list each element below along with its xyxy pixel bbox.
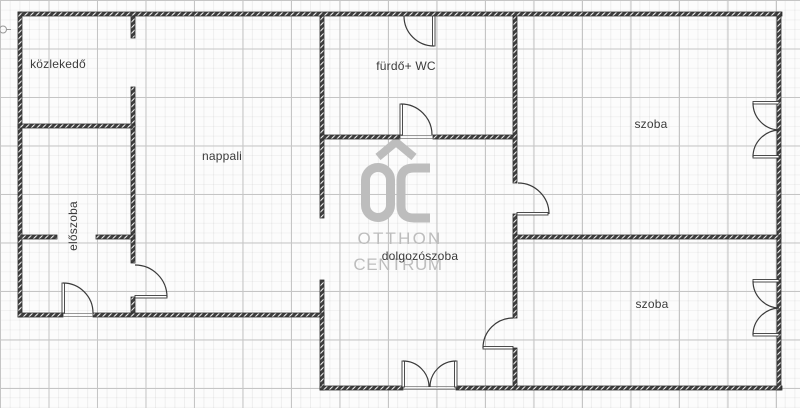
watermark-logo-c — [401, 168, 430, 218]
windows — [753, 102, 779, 337]
wall-eloszoba-divider-b — [96, 235, 135, 239]
watermark-roof-icon — [378, 142, 414, 157]
wall-middle-vertical-a — [513, 16, 517, 183]
window-swing-arc — [753, 308, 779, 335]
wall-bottom-left-b — [93, 313, 324, 317]
door-entrance — [62, 283, 93, 313]
door-swing-arc — [518, 183, 549, 214]
room-label-eloszoba: előszoba — [66, 201, 80, 251]
wall-szoba-divider — [513, 235, 781, 239]
wall-furdo-bottom-a — [320, 135, 400, 139]
door-swing-arc — [430, 361, 456, 387]
window-sash — [753, 156, 779, 159]
room-label-furdo-wc: fürdő+ WC — [376, 59, 436, 73]
door-swing-arc — [483, 318, 513, 348]
wall-bottom-b — [456, 386, 782, 390]
door-leaf — [402, 361, 405, 387]
room-label-nappali: nappali — [202, 149, 242, 163]
wall-left — [18, 12, 22, 317]
room-label-szoba-also: szoba — [635, 297, 668, 311]
door-swing-arc — [403, 361, 429, 387]
door-leaf — [62, 283, 65, 313]
door-leaf — [517, 213, 548, 216]
marker-circle — [0, 26, 7, 33]
wall-kozlekedo-bottom — [18, 124, 135, 128]
door-swing-arc — [401, 104, 432, 135]
door-leaf — [483, 347, 513, 350]
door-leaf — [433, 16, 436, 46]
watermark-name-line1: OTTHON — [358, 229, 443, 249]
wall-bottom-a — [320, 386, 403, 390]
window-sash — [753, 334, 779, 337]
door-furdo-top — [404, 16, 435, 46]
floorplan: OTTHON CENTRUM OC közlekedő nappali fürd… — [0, 0, 800, 408]
wall-eloszoba-nappali-low — [131, 297, 135, 313]
door-swing-arc — [63, 283, 93, 313]
wall-kozlekedo-stub — [131, 16, 135, 38]
wall-lower-left-vertical — [320, 313, 324, 390]
window-swing-arc — [753, 130, 779, 157]
door-furdo-bottom — [400, 104, 432, 135]
door-swing-arc — [404, 16, 434, 46]
window-sash — [753, 102, 779, 105]
door-leaf — [135, 296, 167, 299]
door-eloszoba-nappali — [135, 265, 167, 298]
door-szoba-also — [483, 318, 513, 349]
wall-nappali-right-upper — [320, 16, 324, 218]
door-leaf — [455, 361, 458, 387]
door-leaf — [400, 104, 403, 135]
wall-eloszoba-divider-a — [18, 235, 57, 239]
door-szoba-felso — [517, 183, 549, 215]
watermark-logo — [366, 142, 431, 218]
window-swing-arc — [753, 281, 779, 308]
door-swing-arc — [135, 265, 167, 297]
wall-furdo-bottom-b — [433, 135, 517, 139]
room-label-kozlekedo: közlekedő — [30, 57, 86, 71]
window-swing-arc — [753, 103, 779, 130]
room-label-szoba-felso: szoba — [634, 117, 667, 131]
wall-middle-vertical-c — [513, 348, 517, 386]
window-szoba-felso — [753, 102, 779, 159]
wall-nappali-right-lower — [320, 280, 324, 313]
window-sash — [753, 280, 779, 283]
watermark-logo-o — [366, 168, 391, 218]
window-szoba-also — [753, 280, 779, 337]
wall-top — [18, 12, 782, 16]
survey-marker-icon — [0, 26, 11, 33]
wall-middle-vertical-b — [513, 214, 517, 318]
door-balcony-double — [402, 361, 457, 387]
wall-bottom-left-a — [18, 313, 63, 317]
room-label-dolgozoszoba: dolgozószoba — [382, 249, 458, 263]
